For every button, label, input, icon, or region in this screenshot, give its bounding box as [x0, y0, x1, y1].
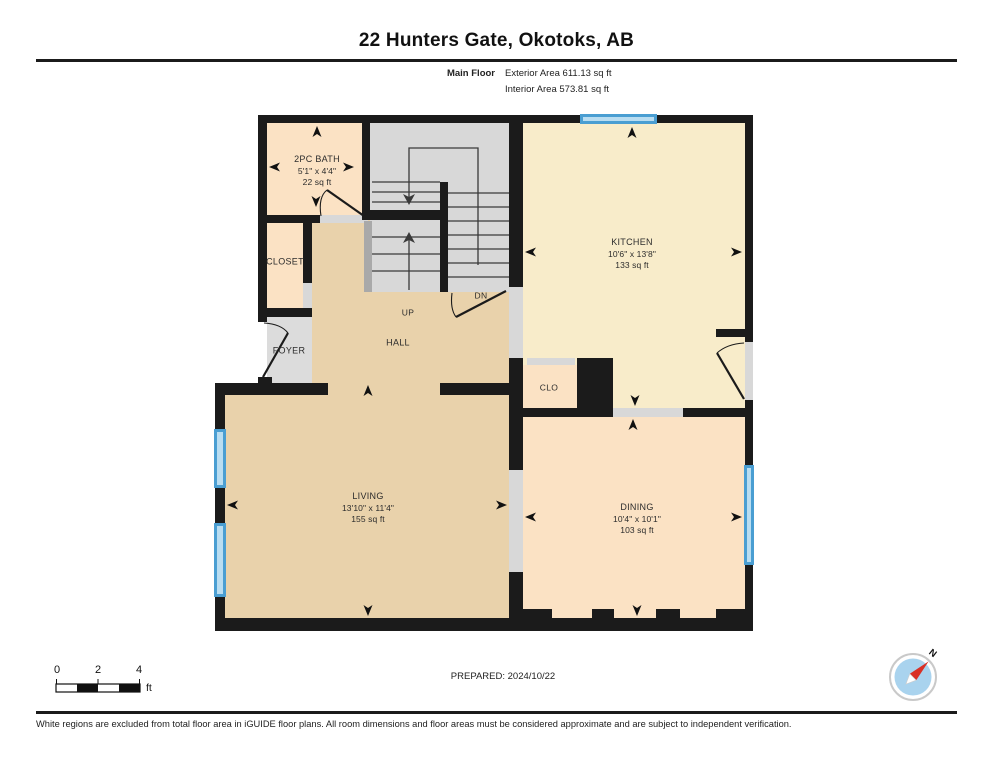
hall-living-opening — [328, 383, 440, 395]
scale-tick-0: 0 — [50, 664, 64, 676]
room-name: FOYER — [273, 345, 306, 357]
room-name: DINING — [613, 502, 661, 514]
footer-divider — [36, 711, 957, 714]
wall-bath-right — [362, 123, 370, 220]
stair-half-wall — [364, 221, 372, 292]
room-label-kitchen: KITCHEN 10'6" x 13'8" 133 sq ft — [608, 237, 656, 272]
dining-post-3 — [656, 609, 680, 618]
prepared-date: PREPARED: 2024/10/22 — [403, 671, 603, 682]
room-label-hall: HALL — [386, 337, 410, 349]
wall-right-lower — [745, 565, 753, 631]
scale-bar — [56, 679, 140, 692]
wall-stair-right — [509, 123, 523, 287]
wall-living-top-left — [215, 383, 328, 395]
room-label-clo: CLO — [540, 382, 558, 394]
hall-kitchen-opening — [509, 287, 523, 358]
stairs — [364, 123, 509, 292]
wall-top — [258, 115, 753, 123]
room-name: LIVING — [342, 491, 394, 503]
stair-up-label: UP — [402, 307, 414, 319]
stair-dn-label: DN — [475, 290, 488, 302]
room-name: CLO — [540, 382, 558, 394]
wall-living-dining-lower — [509, 572, 523, 618]
wall-closet-right — [303, 223, 312, 283]
room-area: 133 sq ft — [608, 260, 656, 272]
compass-icon — [890, 654, 936, 700]
room-name: HALL — [386, 337, 410, 349]
wall-living-dining-upper — [509, 395, 523, 470]
wall-kitchen-dining-left — [509, 408, 613, 417]
room-area: 22 sq ft — [294, 177, 340, 189]
wall-bottom — [215, 618, 753, 631]
room-label-living: LIVING 13'10" x 11'4" 155 sq ft — [342, 491, 394, 526]
wall-right-upper — [745, 115, 753, 342]
side-door-opening — [745, 342, 753, 400]
wall-kitchen-dining-right — [683, 408, 745, 417]
floor-plan-svg — [0, 0, 993, 768]
wall-block — [577, 358, 613, 408]
scale-tick-2: 2 — [91, 664, 105, 676]
closet-opening — [303, 283, 312, 308]
room-label-bath: 2PC BATH 5'1" x 4'4" 22 sq ft — [294, 154, 340, 189]
room-label-closet: CLOSET — [266, 256, 304, 268]
scale-tick-4: 4 — [132, 664, 146, 676]
disclaimer-text: White regions are excluded from total fl… — [36, 719, 792, 729]
clo-opening — [527, 358, 575, 365]
room-name: CLOSET — [266, 256, 304, 268]
room-label-dining: DINING 10'4" x 10'1" 103 sq ft — [613, 502, 661, 537]
wall-bath-bottom — [258, 215, 320, 223]
wall-right-mid — [745, 400, 753, 465]
wall-stair-divider — [440, 182, 448, 292]
dining-post-2 — [592, 609, 614, 618]
bath-door-sill — [320, 215, 368, 223]
scale-unit: ft — [146, 682, 152, 694]
living-dining-opening — [509, 470, 523, 572]
room-dims: 10'4" x 10'1" — [613, 513, 661, 525]
room-name: 2PC BATH — [294, 154, 340, 166]
floor-plan-page: 22 Hunters Gate, Okotoks, AB Main Floor … — [0, 0, 993, 768]
dining-post-1 — [523, 609, 552, 618]
wall-kitchen-stub — [716, 329, 745, 337]
room-dims: 13'10" x 11'4" — [342, 502, 394, 514]
room-area: 103 sq ft — [613, 525, 661, 537]
room-area: 155 sq ft — [342, 514, 394, 526]
kitchen-dining-opening — [613, 408, 683, 417]
room-label-foyer: FOYER — [273, 345, 306, 357]
room-dims: 5'1" x 4'4" — [294, 165, 340, 177]
room-dims: 10'6" x 13'8" — [608, 248, 656, 260]
wall-closet-bottom — [258, 308, 312, 317]
wall-stair-mid — [362, 210, 448, 220]
room-name: KITCHEN — [608, 237, 656, 249]
dining-post-4 — [716, 609, 745, 618]
